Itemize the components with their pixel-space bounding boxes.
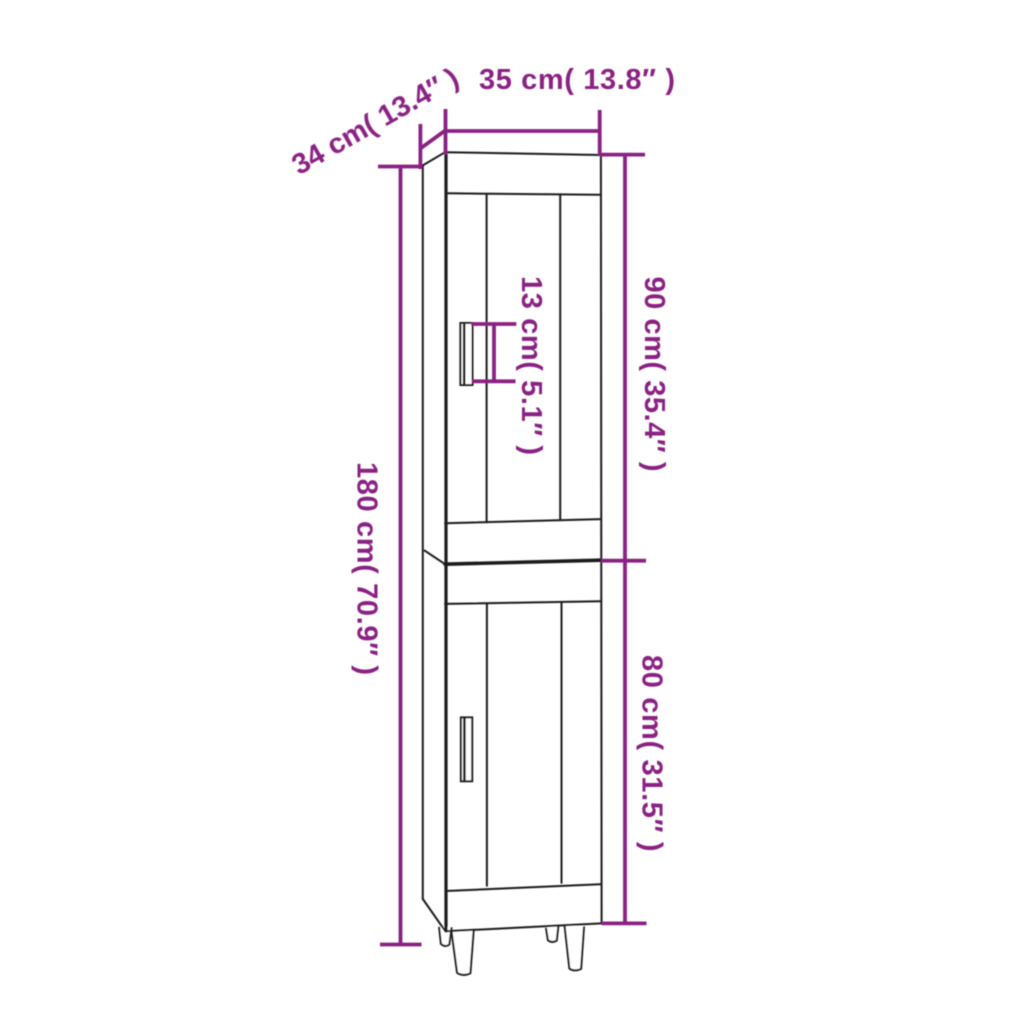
svg-text:34 cm( 13.4″ ): 34 cm( 13.4″ ) [287, 62, 465, 181]
svg-text:180 cm( 70.9″ ): 180 cm( 70.9″ ) [351, 462, 383, 675]
svg-text:13 cm( 5.1″ ): 13 cm( 5.1″ ) [515, 276, 547, 455]
svg-text:90 cm( 35.4″ ): 90 cm( 35.4″ ) [638, 277, 670, 472]
svg-text:80 cm( 31.5″ ): 80 cm( 31.5″ ) [636, 655, 668, 852]
svg-text:35 cm( 13.8″ ): 35 cm( 13.8″ ) [479, 64, 675, 96]
